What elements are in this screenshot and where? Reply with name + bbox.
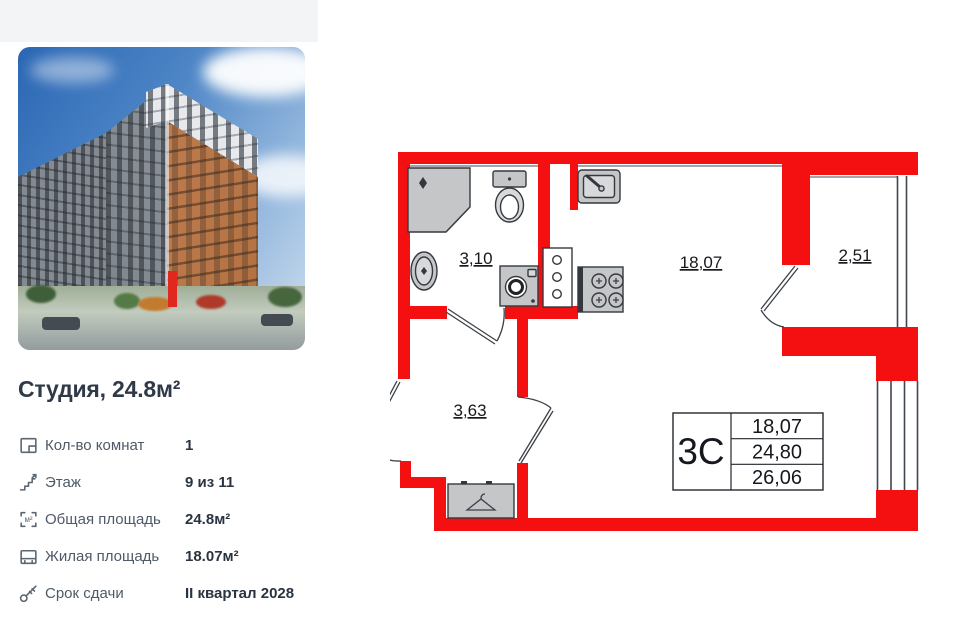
bathroom-sink — [411, 252, 437, 290]
door-bathroom — [446, 308, 504, 344]
bush — [138, 297, 172, 311]
cloud — [203, 47, 305, 97]
balcony-area-label: 2,51 — [838, 246, 871, 265]
summary-total-area: 24,80 — [752, 442, 802, 464]
spec-value: 24.8м² — [185, 511, 320, 528]
spec-row-floor: Этаж 9 из 11 — [18, 464, 320, 501]
spec-label: Жилая площадь — [45, 548, 185, 565]
spec-value: 9 из 11 — [185, 474, 320, 491]
apartment-type-code: 3С — [677, 431, 724, 472]
living-area-icon — [18, 546, 39, 567]
door-living-room — [518, 397, 553, 463]
bathroom-area-label: 3,10 — [459, 249, 492, 268]
summary-living-area: 18,07 — [752, 416, 802, 438]
svg-text:м²: м² — [24, 515, 32, 524]
door-balcony — [761, 266, 798, 327]
building-photo[interactable] — [18, 47, 305, 350]
bedroom-window — [878, 381, 918, 490]
room-count-icon — [18, 435, 39, 456]
kitchen-sink — [578, 170, 620, 203]
floor-stairs-icon — [18, 472, 39, 493]
balcony-window — [898, 176, 907, 327]
spec-label: Кол-во комнат — [45, 437, 185, 454]
bush — [196, 295, 226, 309]
shower — [408, 168, 470, 232]
living-area-label: 18,07 — [680, 253, 723, 272]
page-title: Студия, 24.8м² — [18, 376, 180, 403]
top-strip — [0, 0, 318, 42]
wardrobe — [448, 481, 514, 518]
car — [42, 317, 80, 330]
spec-label: Срок сдачи — [45, 585, 185, 602]
plan-summary-table: 3С 18,07 24,80 26,06 — [673, 413, 823, 490]
spec-row-total-area: м² Общая площадь 24.8м² — [18, 501, 320, 538]
entrance-sign — [168, 271, 177, 307]
tree — [114, 293, 140, 309]
hallway-area-label: 3,63 — [453, 401, 486, 420]
spec-value: 1 — [185, 437, 320, 454]
total-area-icon: м² — [18, 509, 39, 530]
cloud — [30, 57, 114, 83]
summary-area-with-balcony: 26,06 — [752, 467, 802, 489]
spec-label: Общая площадь — [45, 511, 185, 528]
walls — [398, 152, 918, 531]
spec-value: 18.07м² — [185, 548, 320, 565]
spec-value: II квартал 2028 — [185, 585, 320, 602]
spec-row-completion: Срок сдачи II квартал 2028 — [18, 575, 320, 612]
toilet — [493, 171, 526, 222]
key-icon — [18, 583, 39, 604]
tree — [26, 285, 56, 303]
washing-machine — [500, 266, 538, 306]
tree — [268, 287, 302, 307]
stove — [578, 267, 623, 312]
spec-label: Этаж — [45, 474, 185, 491]
spec-row-rooms: Кол-во комнат 1 — [18, 427, 320, 464]
car — [261, 314, 293, 326]
spec-row-living-area: Жилая площадь 18.07м² — [18, 538, 320, 575]
door-entrance — [390, 381, 401, 461]
spec-list: Кол-во комнат 1 Этаж 9 из 11 м² Общая пл… — [18, 427, 320, 612]
ventilation-shaft — [543, 248, 572, 307]
floor-plan: 3,10 18,07 2,51 3,63 3С 18,07 24,80 26,0… — [390, 145, 930, 615]
